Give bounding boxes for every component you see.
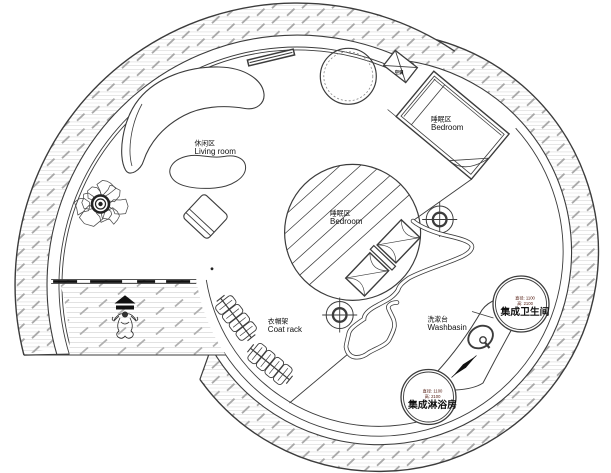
svg-text:直径: 1100: 直径: 1100 <box>423 388 443 394</box>
svg-text:集成淋浴房: 集成淋浴房 <box>407 398 457 411</box>
svg-text:Coat rack: Coat rack <box>268 325 303 334</box>
svg-text:Bedroom: Bedroom <box>330 217 363 226</box>
svg-text:Living room: Living room <box>195 147 237 156</box>
svg-text:高: 2100: 高: 2100 <box>425 393 442 400</box>
svg-text:Bedroom: Bedroom <box>431 123 464 132</box>
svg-text:直径: 1100: 直径: 1100 <box>515 295 535 301</box>
svg-text:集成卫生间: 集成卫生间 <box>500 305 550 318</box>
svg-text:空调: 空调 <box>395 69 404 76</box>
svg-text:高: 2100: 高: 2100 <box>517 300 534 307</box>
svg-text:Washbasin: Washbasin <box>428 323 467 332</box>
